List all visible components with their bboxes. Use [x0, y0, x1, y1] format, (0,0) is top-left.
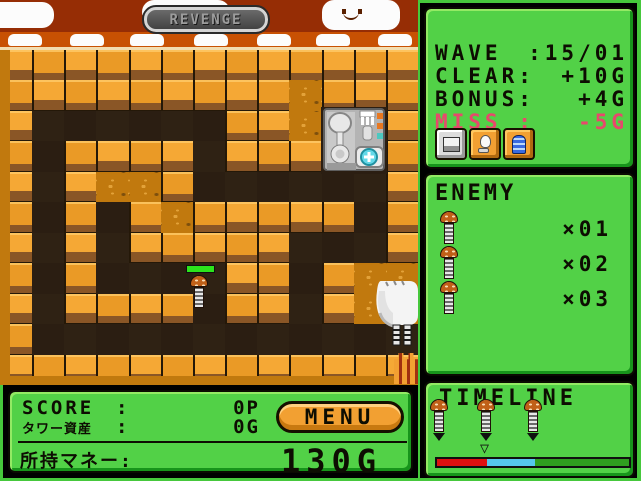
- path-tile: [32, 324, 64, 355]
- brick-tile: [354, 50, 386, 81]
- brick-tile: [129, 50, 161, 81]
- brick-tile: [322, 263, 354, 294]
- wave-banner-label: REVENGE: [169, 12, 242, 28]
- game-screen: REVENGE: [0, 0, 641, 481]
- miss-value: -5G: [578, 111, 628, 133]
- soldier-icon: [512, 135, 526, 154]
- brick-tile: [193, 233, 225, 264]
- path-tile: [96, 111, 128, 142]
- brick-tile: [64, 50, 96, 81]
- timeline-panel-title: TIMELINE: [439, 386, 577, 411]
- build-block-button[interactable]: [435, 128, 467, 160]
- brick-tile: [386, 111, 418, 142]
- timeline-enemy-sprite: [430, 399, 450, 447]
- brick-tile: [386, 172, 418, 203]
- brick-tile: [64, 233, 96, 264]
- brick-tile: [257, 80, 289, 111]
- path-tile: [129, 324, 161, 355]
- bonus-value: +4G: [578, 88, 628, 110]
- brick-tile: [289, 202, 321, 233]
- brick-tile: [64, 141, 96, 172]
- brick-tile: [129, 294, 161, 325]
- game-map[interactable]: REVENGE: [0, 0, 418, 385]
- assets-value: 0G: [160, 416, 260, 438]
- brick-tile: [225, 111, 257, 142]
- brick-tile: [225, 202, 257, 233]
- path-tile: [257, 324, 289, 355]
- brick-tile: [64, 80, 96, 111]
- path-tile: [64, 111, 96, 142]
- dirt-tile[interactable]: [289, 80, 321, 111]
- brick-tile: [257, 233, 289, 264]
- path-tile: [193, 324, 225, 355]
- brick-tile: [257, 202, 289, 233]
- menu-button[interactable]: MENU: [276, 401, 404, 433]
- wave-row: WAVE:15/01: [435, 42, 628, 64]
- block-icon: [443, 137, 460, 152]
- brick-tile: [193, 202, 225, 233]
- path-tile: [32, 202, 64, 233]
- path-tile: [193, 172, 225, 203]
- mushroom-body: [194, 287, 204, 308]
- tower-assets-label: タワー資産: [22, 418, 92, 437]
- path-tile: [64, 324, 96, 355]
- brick-tile: [257, 141, 289, 172]
- timeline-progress-bar: [435, 457, 631, 468]
- boss-creature: [371, 277, 418, 353]
- path-tile: [32, 263, 64, 294]
- brick-tile: [129, 233, 161, 264]
- mushroom-enemy-sprite: [190, 275, 210, 309]
- path-tile: [129, 263, 161, 294]
- brick-tile: [386, 233, 418, 264]
- brick-tile: [257, 263, 289, 294]
- brick-tile: [386, 202, 418, 233]
- brick-tile: [257, 111, 289, 142]
- path-tile: [289, 263, 321, 294]
- enemy-unit: [186, 265, 216, 315]
- path-tile: [354, 202, 386, 233]
- path-tile: [193, 111, 225, 142]
- enemy-panel-title: ENEMY: [435, 181, 516, 206]
- hud-column: WAVE:15/01 CLEAR:+10G BONUS:+4G MISS :-5…: [418, 0, 641, 481]
- wave-value: :15/01: [528, 42, 628, 64]
- assets-sep: :: [116, 416, 127, 438]
- path-tile: [129, 111, 161, 142]
- sun-cloud: [322, 0, 400, 30]
- cloud: [194, 34, 228, 46]
- brick-tile: [225, 233, 257, 264]
- path-tile: [289, 294, 321, 325]
- brick-tile: [161, 50, 193, 81]
- drill-tip: [433, 433, 445, 441]
- path-tile: [161, 324, 193, 355]
- brick-tile: [64, 263, 96, 294]
- brick-tile: [225, 141, 257, 172]
- dirt-tile[interactable]: [161, 202, 193, 233]
- brick-tile: [322, 294, 354, 325]
- wave-label: WAVE: [435, 42, 502, 64]
- path-tile: [32, 111, 64, 142]
- map-edge-dirt: [0, 376, 418, 385]
- brick-tile: [386, 80, 418, 111]
- brick-tile: [161, 172, 193, 203]
- cloud: [257, 34, 291, 46]
- brick-tile: [161, 233, 193, 264]
- path-tile: [32, 141, 64, 172]
- drill-tip: [527, 433, 539, 441]
- tile-layer: [0, 50, 418, 385]
- path-tile: [193, 141, 225, 172]
- enemy-count: ×02: [562, 252, 612, 276]
- goal-machine: [321, 107, 387, 174]
- money-value: 130G: [200, 442, 382, 480]
- brick-tile: [161, 80, 193, 111]
- timeline-bar-blue: [487, 459, 535, 466]
- cloud: [70, 34, 104, 46]
- dirt-tile[interactable]: [289, 111, 321, 142]
- brick-tile: [257, 294, 289, 325]
- money-label: 所持マネー:: [20, 447, 133, 473]
- enemy-type-icon: [440, 246, 460, 280]
- clear-value: +10G: [561, 65, 628, 87]
- timeline-panel: TIMELINE ▽: [424, 381, 635, 478]
- sun-smile: [343, 12, 359, 20]
- brick-tile: [322, 50, 354, 81]
- brick-tile: [289, 141, 321, 172]
- brick-tile: [129, 141, 161, 172]
- brick-tile: [96, 50, 128, 81]
- bonus-label: BONUS:: [435, 88, 535, 110]
- cloud: [378, 34, 412, 46]
- wave-info-panel: WAVE:15/01 CLEAR:+10G BONUS:+4G MISS :-5…: [424, 7, 635, 169]
- clear-row: CLEAR:+10G: [435, 65, 628, 87]
- enemy-health-bar: [186, 265, 215, 273]
- path-tile: [354, 172, 386, 203]
- brick-tile: [386, 50, 418, 81]
- brick-tile: [193, 50, 225, 81]
- cloud: [316, 34, 350, 46]
- brick-tile: [32, 80, 64, 111]
- path-tile: [96, 202, 128, 233]
- brick-tile: [257, 50, 289, 81]
- clear-label: CLEAR:: [435, 65, 535, 87]
- brick-tile: [64, 172, 96, 203]
- build-soldier-button[interactable]: [503, 128, 535, 160]
- brick-tile: [322, 202, 354, 233]
- path-tile: [257, 172, 289, 203]
- brick-tile: [225, 50, 257, 81]
- path-tile: [96, 233, 128, 264]
- path-tile: [289, 233, 321, 264]
- timeline-bar-red: [437, 459, 487, 466]
- brick-tile: [129, 202, 161, 233]
- cloud: [0, 2, 54, 28]
- enemy-type-icon: [440, 211, 460, 245]
- mushroom-cap: [190, 275, 208, 287]
- brick-tile: [289, 50, 321, 81]
- wave-banner: REVENGE: [144, 7, 268, 32]
- brick-tile: [193, 80, 225, 111]
- map-edge-dirt: [0, 50, 10, 385]
- bonus-row: BONUS:+4G: [435, 88, 628, 110]
- enemy-count: ×01: [562, 217, 612, 241]
- dirt-tile[interactable]: [96, 172, 128, 203]
- brick-tile: [386, 141, 418, 172]
- dirt-tile[interactable]: [129, 172, 161, 203]
- path-tile: [354, 233, 386, 264]
- build-tower-button[interactable]: [469, 128, 501, 160]
- brick-tile: [32, 50, 64, 81]
- path-tile: [322, 324, 354, 355]
- tower-icon: [478, 135, 492, 153]
- brick-tile: [225, 80, 257, 111]
- next-spawn-marker: ▽: [480, 439, 489, 457]
- brick-tile: [96, 80, 128, 111]
- score-panel: SCORE : 0P タワー資産 : 0G MENU 所持マネー: 130G: [8, 390, 413, 473]
- path-tile: [96, 324, 128, 355]
- path-tile: [32, 172, 64, 203]
- path-tile: [289, 324, 321, 355]
- path-tile: [32, 233, 64, 264]
- cloud: [130, 34, 164, 46]
- path-tile: [322, 233, 354, 264]
- path-tile: [225, 172, 257, 203]
- path-tile: [225, 324, 257, 355]
- brick-tile: [129, 80, 161, 111]
- enemy-type-icon: [440, 281, 460, 315]
- path-tile: [161, 111, 193, 142]
- brick-tile: [96, 141, 128, 172]
- path-tile: [322, 172, 354, 203]
- timeline-enemy-sprite: [524, 399, 544, 447]
- path-tile: [289, 172, 321, 203]
- brick-tile: [64, 294, 96, 325]
- brick-tile: [161, 141, 193, 172]
- score-bar: SCORE : 0P タワー資産 : 0G MENU 所持マネー: 130G: [0, 385, 418, 481]
- brick-tile: [96, 294, 128, 325]
- brick-tile: [64, 202, 96, 233]
- score-label: SCORE: [22, 397, 94, 419]
- enemy-count: ×03: [562, 287, 612, 311]
- path-tile: [32, 294, 64, 325]
- enemy-health-fill: [187, 266, 214, 272]
- cloud: [8, 34, 42, 46]
- brick-tile: [225, 294, 257, 325]
- enemy-panel: ENEMY ×01 ×02 ×03: [424, 173, 635, 376]
- brick-tile: [225, 263, 257, 294]
- path-tile: [96, 263, 128, 294]
